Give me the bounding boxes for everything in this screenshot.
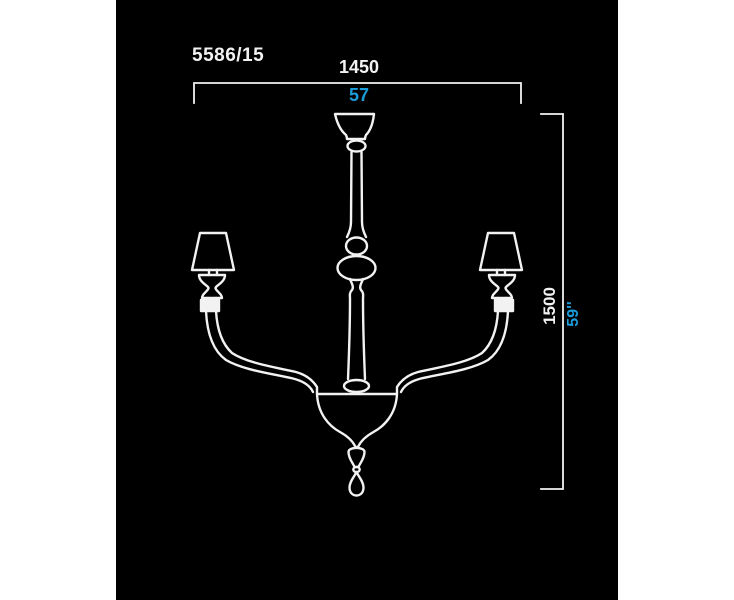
upper-stem-left	[347, 152, 352, 237]
left-arm-lower	[206, 311, 313, 392]
bowl-knop	[349, 448, 365, 467]
width-dimension-inches-label: 57	[349, 85, 369, 106]
model-number: 5586/15	[192, 45, 264, 67]
left-candle-cup	[199, 275, 225, 298]
width-dimension-mm-label: 1450	[339, 57, 379, 78]
canopy-ring	[348, 141, 366, 152]
left-arm-upper	[216, 311, 317, 387]
stem-bead	[346, 238, 367, 255]
bowl-body	[317, 394, 397, 447]
left-shade	[192, 233, 234, 270]
ceiling-canopy	[335, 114, 374, 139]
right-shade	[480, 233, 522, 270]
right-arm-upper	[397, 311, 498, 387]
chandelier-outline	[192, 114, 522, 496]
drawing-canvas: 5586/15 1450 57 1500 59''	[116, 0, 618, 600]
stem-ring	[344, 380, 369, 392]
height-dimension-mm-label: 1500	[540, 287, 560, 325]
height-dimension-inches-label: 59''	[565, 301, 583, 326]
stem-column-left	[348, 279, 353, 379]
right-collar	[495, 300, 513, 311]
stem-column-right	[360, 279, 365, 379]
right-candle-cup	[489, 275, 515, 298]
upper-stem-right	[362, 152, 367, 237]
right-arm-lower	[401, 311, 508, 392]
stem-ball	[338, 256, 376, 280]
left-collar	[201, 300, 219, 311]
pendant-teardrop	[350, 472, 364, 496]
